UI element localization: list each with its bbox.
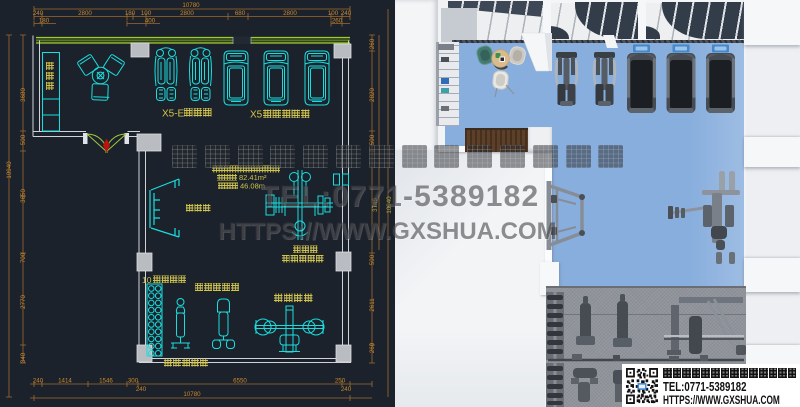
svg-text:500: 500 xyxy=(369,134,376,145)
svg-text:2820: 2820 xyxy=(369,88,376,102)
svg-text:500: 500 xyxy=(20,134,27,145)
svg-text:260: 260 xyxy=(332,18,343,25)
svg-text:700: 700 xyxy=(20,252,27,263)
svg-text:3680: 3680 xyxy=(20,88,27,102)
svg-text:250: 250 xyxy=(335,378,346,385)
svg-text:1414: 1414 xyxy=(58,378,72,385)
svg-text:6550: 6550 xyxy=(233,378,247,385)
svg-text:2800: 2800 xyxy=(283,10,297,17)
svg-text:240: 240 xyxy=(136,386,147,393)
svg-text:180: 180 xyxy=(125,10,136,17)
svg-text:X5: X5 xyxy=(250,110,263,121)
svg-text:680: 680 xyxy=(235,10,246,17)
svg-text:10940: 10940 xyxy=(6,161,13,179)
svg-text:100: 100 xyxy=(328,10,339,17)
svg-text:2770: 2770 xyxy=(20,295,27,309)
svg-text:3650: 3650 xyxy=(20,189,27,203)
svg-text:260: 260 xyxy=(369,38,376,49)
svg-text:340: 340 xyxy=(20,352,27,363)
svg-text:180: 180 xyxy=(39,18,50,25)
svg-text:300: 300 xyxy=(128,378,139,385)
svg-text:100: 100 xyxy=(141,10,152,17)
svg-text:240: 240 xyxy=(33,378,44,385)
svg-text:X5-E: X5-E xyxy=(162,109,185,120)
svg-text:2800: 2800 xyxy=(180,10,194,17)
svg-text:2611: 2611 xyxy=(369,298,376,312)
svg-text:10780: 10780 xyxy=(183,391,201,398)
svg-text:400: 400 xyxy=(145,18,156,25)
svg-text:10: 10 xyxy=(142,275,152,285)
svg-text:10780: 10780 xyxy=(182,2,200,9)
svg-text:2800: 2800 xyxy=(78,10,92,17)
svg-text:260: 260 xyxy=(369,342,376,353)
svg-text:1546: 1546 xyxy=(99,378,113,385)
svg-text:240: 240 xyxy=(341,10,352,17)
svg-text:240: 240 xyxy=(341,386,352,393)
svg-text:240: 240 xyxy=(33,10,44,17)
svg-text:500: 500 xyxy=(369,254,376,265)
